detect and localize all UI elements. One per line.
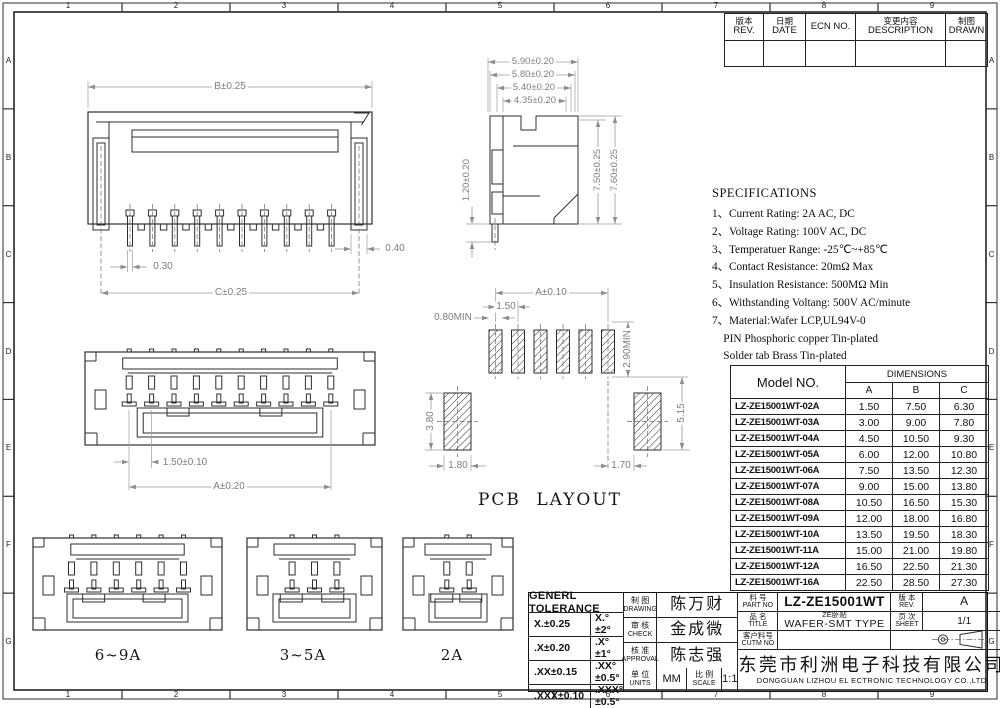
zone-number: 1 [14,690,122,701]
zone-number: 4 [338,1,446,12]
dim-c: 18.30 [940,527,989,543]
model-table-row: LZ-ZE15001WT-16A 22.50 28.50 27.30 [731,575,989,591]
title-block: GENERL TOLERANCE X.±0.25 X.°±2° .X±0.20 … [528,592,988,692]
dim-side-height-2: 7.60±0.25 [610,147,620,193]
zone-number: 5 [446,1,554,12]
dim-b: 7.50 [893,399,940,415]
revision-col-rev: 版本REV. [725,14,764,40]
sheet-value: 1/1 [923,612,1000,630]
units-scale-row: 单 位UNITS MM 比 例SCALE 1:1 [624,668,737,691]
dim-side-1: 5.90±0.20 [510,57,556,67]
dim-mating-overall: A±0.20 [211,482,247,493]
dim-b: 15.00 [893,479,940,495]
model-table-row: LZ-ZE15001WT-09A 12.00 18.00 16.80 [731,511,989,527]
dim-pcb-pitch: 1.50 [494,302,517,313]
dim-a: 22.50 [846,575,893,591]
customer-label: 客户料号CUTM NO [738,631,778,649]
dim-side-2: 5.80±0.20 [510,70,556,80]
model-number: LZ-ZE15001WT-16A [731,575,846,591]
zone-number: 9 [878,1,986,12]
model-number: LZ-ZE15001WT-08A [731,495,846,511]
tolerance-row: X.±0.25 X.°±2° [529,613,623,637]
specification-item: 1、Current Rating: 2A AC, DC [712,206,992,224]
signature-row: 制 图DRAWING 陈万财 [624,593,737,618]
zone-letter: A [3,12,14,109]
dim-c: 10.80 [940,447,989,463]
title-row: 品 名TITLE ZE卧贴WAFER-SMT TYPE 页 次SHEET 1/1 [738,612,1000,631]
dim-a: 15.00 [846,543,893,559]
col-a: A [846,383,893,399]
zone-letter: D [3,303,14,400]
dim-front-tab-width: 0.40 [383,244,406,255]
dim-a: 4.50 [846,431,893,447]
company-name-cn: 东莞市利洲电子科技有限公司 [738,656,1000,676]
specifications-list: 1、Current Rating: 2A AC, DC2、Voltage Rat… [712,206,992,366]
product-title: ZE卧贴WAFER-SMT TYPE [778,612,891,630]
dim-a: 6.00 [846,447,893,463]
specifications-title: SPECIFICATIONS [712,186,992,201]
dim-c: 6.30 [940,399,989,415]
title-label: 品 名TITLE [738,612,778,630]
dim-c: 27.30 [940,575,989,591]
zone-number: 2 [122,1,230,12]
part-label: 料 号PART NO [738,593,778,611]
specification-item: 3、Temperatuer Range: -25℃~+85℃ [712,242,992,260]
dim-c: 9.30 [940,431,989,447]
model-table-row: LZ-ZE15001WT-12A 16.50 22.50 21.30 [731,559,989,575]
dim-a: 13.50 [846,527,893,543]
dim-b: 16.50 [893,495,940,511]
part-row: 料 号PART NO LZ-ZE15001WT 版 本REV. A [738,593,1000,612]
zone-number: 7 [662,1,770,12]
units-label: 单 位UNITS [624,668,657,691]
dim-c: 21.30 [940,559,989,575]
model-number: LZ-ZE15001WT-10A [731,527,846,543]
specifications: SPECIFICATIONS 1、Current Rating: 2A AC, … [712,186,992,366]
revision-table: 版本REV. 日期DATE ECN NO. 变更内容DESCRIPTION 制图… [724,13,988,67]
model-number: LZ-ZE15001WT-02A [731,399,846,415]
drawing-sheet: { "sheet": { "zones_h": ["1","2","3","4"… [0,0,1000,702]
dim-a: 1.50 [846,399,893,415]
scale-label: 比 例SCALE [687,668,722,691]
model-header: Model NO. [731,366,846,399]
tolerance-row: .X±0.20 .X°±1° [529,637,623,661]
dim-b: 10.50 [893,431,940,447]
dim-pcb-right-pad-width: 1.70 [609,461,632,472]
tolerance-row: .XXX±0.10 .XXX°±0.5° [529,685,623,708]
zone-letter: G [3,593,14,690]
dim-c: 13.80 [940,479,989,495]
zone-number: 1 [14,1,122,12]
dim-pcb-left-pad-width: 1.80 [446,461,469,472]
dim-front-pin-width: 0.30 [151,262,174,273]
dim-b: 22.50 [893,559,940,575]
dim-side-3: 5.40±0.20 [511,83,557,93]
dim-a: 9.00 [846,479,893,495]
dim-c: 7.80 [940,415,989,431]
model-table-row: LZ-ZE15001WT-07A 9.00 15.00 13.80 [731,479,989,495]
dim-b: 21.00 [893,543,940,559]
model-number: LZ-ZE15001WT-11A [731,543,846,559]
dim-a: 10.50 [846,495,893,511]
units-value: MM [657,668,687,691]
dim-c: 12.30 [940,463,989,479]
dim-b: 18.00 [893,511,940,527]
customer-value [778,631,891,649]
variant-label-3-5a: 3~5A [280,646,327,664]
model-table-row: LZ-ZE15001WT-08A 10.50 16.50 15.30 [731,495,989,511]
sheet-label: 页 次SHEET [891,612,923,630]
model-table-row: LZ-ZE15001WT-11A 15.00 21.00 19.80 [731,543,989,559]
dim-c: 16.80 [940,511,989,527]
specification-item: 5、Insulation Resistance: 500MΩ Min [712,277,992,295]
signature-name: 陈志强 [657,643,737,668]
dim-pcb-overall: A±0.10 [533,288,569,299]
zone-number: 2 [122,690,230,701]
dim-a: 7.50 [846,463,893,479]
signature-row: 审 核CHECK 金成微 [624,618,737,643]
zone-number: 3 [230,1,338,12]
signature-row: 核 准APPROVAL 陈志强 [624,643,737,668]
dim-pcb-right-pad: 5.15 [677,401,688,424]
tolerance-rows: X.±0.25 X.°±2° .X±0.20 .X°±1° .XX±0.15 .… [529,613,623,708]
revision-col-ecn: ECN NO. [806,14,856,40]
dim-side-pin-length: 1.20±0.20 [462,157,472,203]
model-table-row: LZ-ZE15001WT-02A 1.50 7.50 6.30 [731,399,989,415]
frame-zone-numbers-top: 123456789 [14,1,986,12]
model-number: LZ-ZE15001WT-05A [731,447,846,463]
specification-item: 2、Voltage Rating: 100V AC, DC [712,224,992,242]
model-number: LZ-ZE15001WT-09A [731,511,846,527]
model-number: LZ-ZE15001WT-04A [731,431,846,447]
specification-item: Solder tab Brass Tin-plated [712,348,992,366]
signature-name: 陈万财 [657,593,737,617]
part-number: LZ-ZE15001WT [778,593,891,611]
title-block-right: 料 号PART NO LZ-ZE15001WT 版 本REV. A 品 名TIT… [737,593,1000,691]
dim-b: 13.50 [893,463,940,479]
frame-zone-letters-left: ABCDEFG [3,12,14,690]
dim-c: 19.80 [940,543,989,559]
revision-col-drawn: 制图DRAWN [946,14,987,40]
zone-letter: F [3,496,14,593]
model-table-row: LZ-ZE15001WT-06A 7.50 13.50 12.30 [731,463,989,479]
model-table-row: LZ-ZE15001WT-04A 4.50 10.50 9.30 [731,431,989,447]
model-table-row: LZ-ZE15001WT-03A 3.00 9.00 7.80 [731,415,989,431]
scale-value: 1:1 [722,668,737,691]
customer-row: 客户料号CUTM NO [738,631,1000,650]
model-table-row: LZ-ZE15001WT-05A 6.00 12.00 10.80 [731,447,989,463]
signature-name: 金成微 [657,618,737,642]
dim-pcb-gap: 2.90MIN [623,328,634,370]
rev-label: 版 本REV. [891,593,923,611]
model-number: LZ-ZE15001WT-06A [731,463,846,479]
specification-item: 7、Material:Wafer LCP,UL94V-0 [712,313,992,331]
col-b: B [893,383,940,399]
dim-front-overall-c: C±0.25 [213,288,249,299]
dim-a: 3.00 [846,415,893,431]
dim-side-height-1: 7.50±0.25 [593,147,603,193]
tolerance-row: .XX±0.15 .XX°±0.5° [529,661,623,685]
model-dimensions-table: Model NO. DIMENSIONS A B C LZ-ZE15001WT-… [730,365,989,591]
zone-number: 6 [554,1,662,12]
pcb-layout-label: PCB LAYOUT [478,490,622,510]
dim-front-overall-b: B±0.25 [212,82,248,93]
dimensions-header: DIMENSIONS [846,366,989,383]
rev-value: A [923,593,1000,611]
dim-b: 19.50 [893,527,940,543]
revision-col-date: 日期DATE [764,14,806,40]
zone-number: 4 [338,690,446,701]
model-table-row: LZ-ZE15001WT-10A 13.50 19.50 18.30 [731,527,989,543]
model-number: LZ-ZE15001WT-07A [731,479,846,495]
zone-letter: E [3,399,14,496]
model-number: LZ-ZE15001WT-12A [731,559,846,575]
projection-symbol [891,631,1000,649]
revision-header-row: 版本REV. 日期DATE ECN NO. 变更内容DESCRIPTION 制图… [725,14,987,41]
zone-letter: B [3,109,14,206]
dim-a: 16.50 [846,559,893,575]
variant-label-6-9a: 6~9A [95,646,142,664]
zone-number: 3 [230,690,338,701]
dim-pcb-left-pad: 3.80 [426,409,437,432]
dim-pcb-pad-width: 0.80MIN [432,313,474,324]
company: 东莞市利洲电子科技有限公司 DONGGUAN LIZHOU EL ECTRONI… [738,650,1000,691]
dim-b: 28.50 [893,575,940,591]
zone-letter: C [3,206,14,303]
specification-item: 4、Contact Resistance: 20mΩ Max [712,259,992,277]
specification-item: 6、Withstanding Voltang: 500V AC/minute [712,295,992,313]
zone-number: 8 [770,1,878,12]
dim-mating-pitch: 1.50±0.10 [161,458,209,469]
dim-b: 9.00 [893,415,940,431]
dim-a: 12.00 [846,511,893,527]
dim-b: 12.00 [893,447,940,463]
specification-item: PIN Phosphoric copper Tin-plated [712,331,992,349]
revision-empty-row [725,41,987,66]
tolerance-title: GENERL TOLERANCE [529,593,623,613]
tolerance-table: GENERL TOLERANCE X.±0.25 X.°±2° .X±0.20 … [529,593,623,691]
company-name-en: DONGGUAN LIZHOU EL ECTRONIC TECHNOLOGY C… [757,677,987,685]
signatures: 制 图DRAWING 陈万财 审 核CHECK 金成微 核 准APPROVAL … [623,593,737,691]
model-number: LZ-ZE15001WT-03A [731,415,846,431]
dim-side-4: 4.35±0.20 [512,96,558,106]
revision-col-description: 变更内容DESCRIPTION [856,14,946,40]
dim-c: 15.30 [940,495,989,511]
variant-label-2a: 2A [441,646,463,664]
col-c: C [940,383,989,399]
